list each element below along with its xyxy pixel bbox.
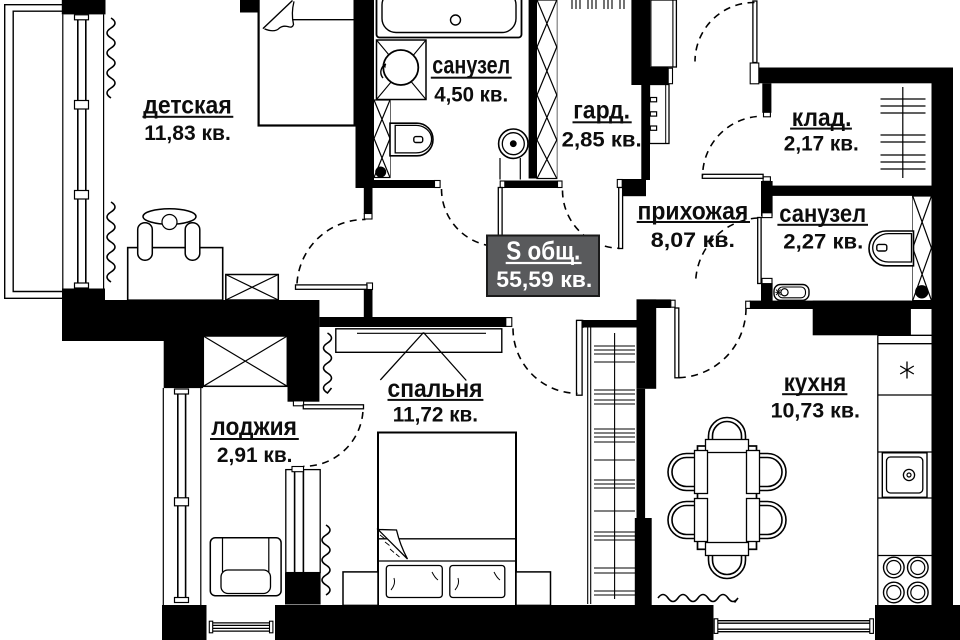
svg-text:спальня: спальня xyxy=(388,375,483,403)
svg-text:лоджия: лоджия xyxy=(211,413,297,441)
svg-text:S общ.: S общ. xyxy=(506,236,580,266)
svg-text:55,59 кв.: 55,59 кв. xyxy=(496,267,592,292)
svg-text:детская: детская xyxy=(143,92,232,120)
svg-text:санузел: санузел xyxy=(432,52,510,80)
svg-text:8,07 кв.: 8,07 кв. xyxy=(651,228,735,252)
svg-text:гард.: гард. xyxy=(573,97,630,125)
svg-text:2,85 кв.: 2,85 кв. xyxy=(562,128,642,152)
svg-text:10,73 кв.: 10,73 кв. xyxy=(771,398,860,422)
svg-text:2,17 кв.: 2,17 кв. xyxy=(784,132,859,156)
svg-text:4,50 кв.: 4,50 кв. xyxy=(434,82,508,106)
svg-text:2,27 кв.: 2,27 кв. xyxy=(783,230,863,254)
svg-text:11,83 кв.: 11,83 кв. xyxy=(144,121,231,145)
svg-text:кухня: кухня xyxy=(784,369,846,397)
svg-text:2,91 кв.: 2,91 кв. xyxy=(217,443,293,467)
svg-text:11,72 кв.: 11,72 кв. xyxy=(393,403,478,427)
